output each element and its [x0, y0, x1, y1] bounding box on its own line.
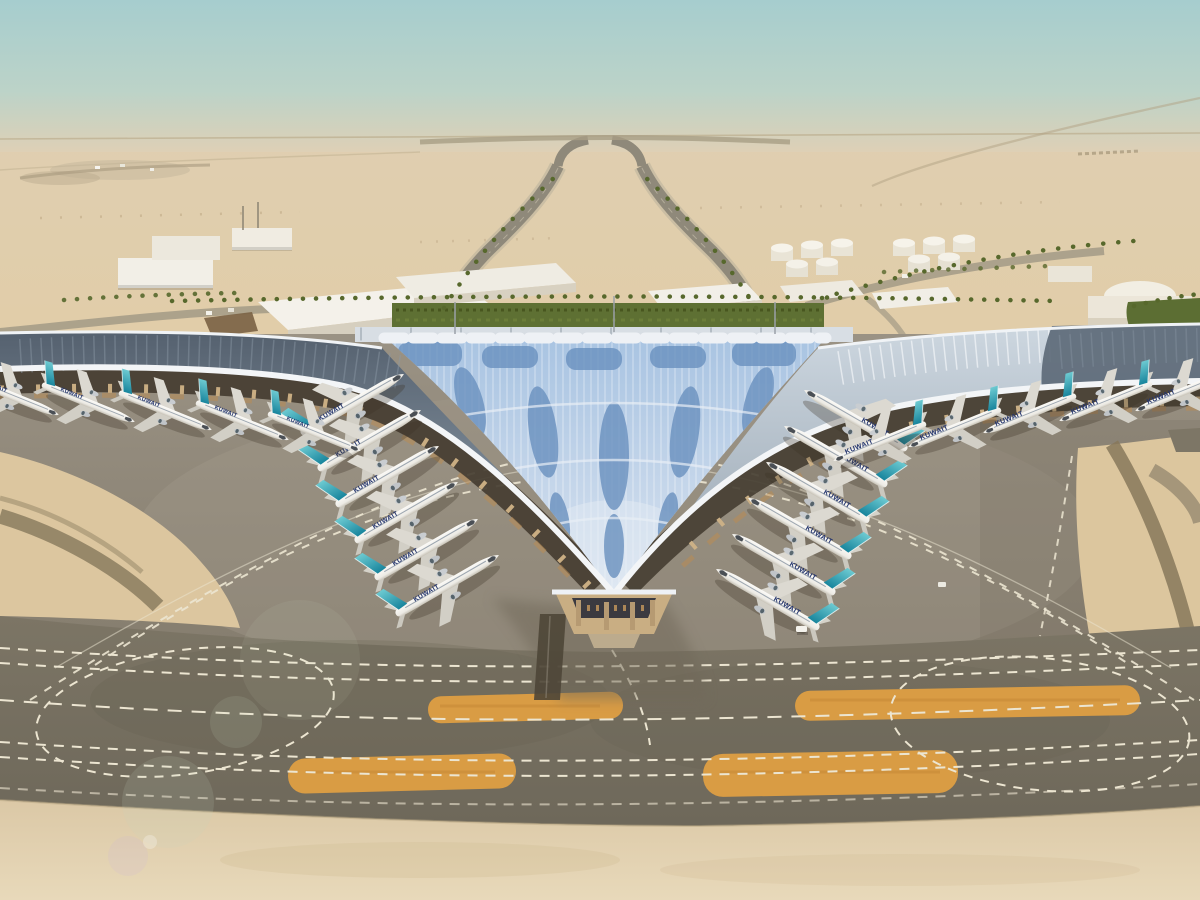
airport-rendering: KUWAIT KUWAIT KUWAIT KUWAIT KUWAIT KUWAI… — [0, 0, 1200, 900]
sky — [0, 0, 1200, 152]
